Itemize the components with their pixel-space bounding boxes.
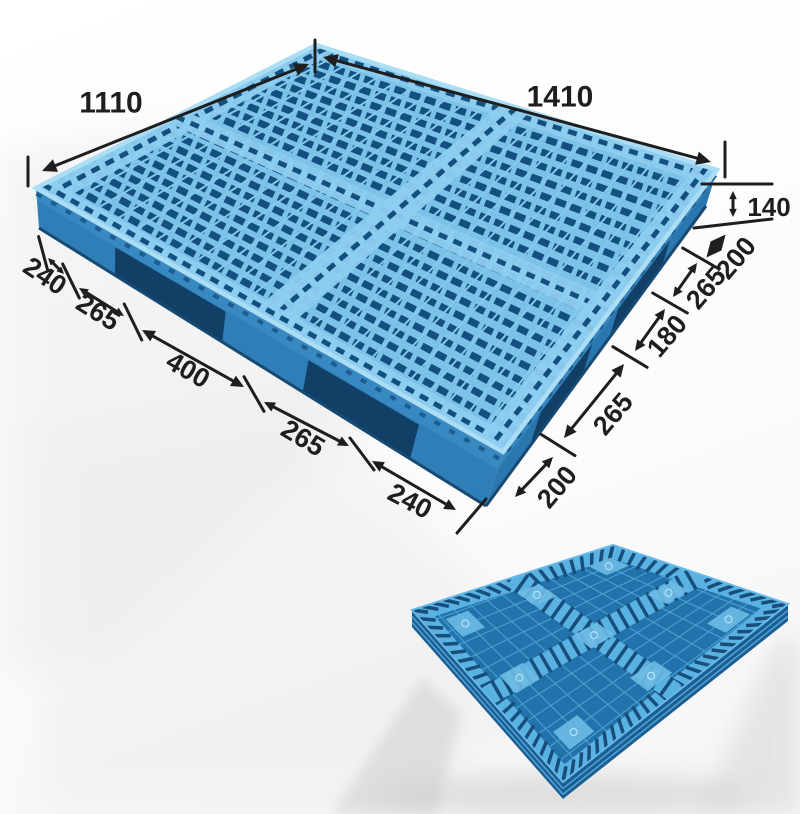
small-border-slot bbox=[597, 739, 598, 755]
dim-label-height-140: 140 bbox=[747, 192, 790, 222]
dim-arrowhead bbox=[729, 191, 737, 199]
dim-label-top-1410: 1410 bbox=[527, 81, 594, 114]
dim-arrowhead bbox=[695, 152, 711, 165]
dim-label-right-4: 200 bbox=[531, 460, 583, 514]
dim-tick bbox=[541, 434, 575, 455]
small-border-slot bbox=[580, 752, 581, 768]
dim-tick bbox=[613, 347, 647, 368]
small-border-slot bbox=[442, 643, 458, 644]
screenshot-root: 1110 1410 140 200 265 180 265 200 240 26… bbox=[0, 0, 800, 814]
dim-arrowhead bbox=[729, 209, 737, 217]
small-border-slot bbox=[712, 650, 728, 652]
small-border-slot bbox=[720, 644, 736, 645]
small-border-slot bbox=[604, 732, 606, 748]
dim-label-right-2: 180 bbox=[641, 309, 693, 363]
small-border-slot bbox=[427, 627, 443, 628]
small-border-slot bbox=[450, 651, 466, 653]
pallet-dimension-diagram: 1110 1410 140 200 265 180 265 200 240 26… bbox=[0, 0, 800, 814]
small-border-slot bbox=[581, 555, 583, 571]
dim-tick bbox=[457, 499, 486, 533]
dim-label-side-1110: 1110 bbox=[79, 87, 142, 120]
dim-label-right-3: 265 bbox=[587, 387, 639, 441]
